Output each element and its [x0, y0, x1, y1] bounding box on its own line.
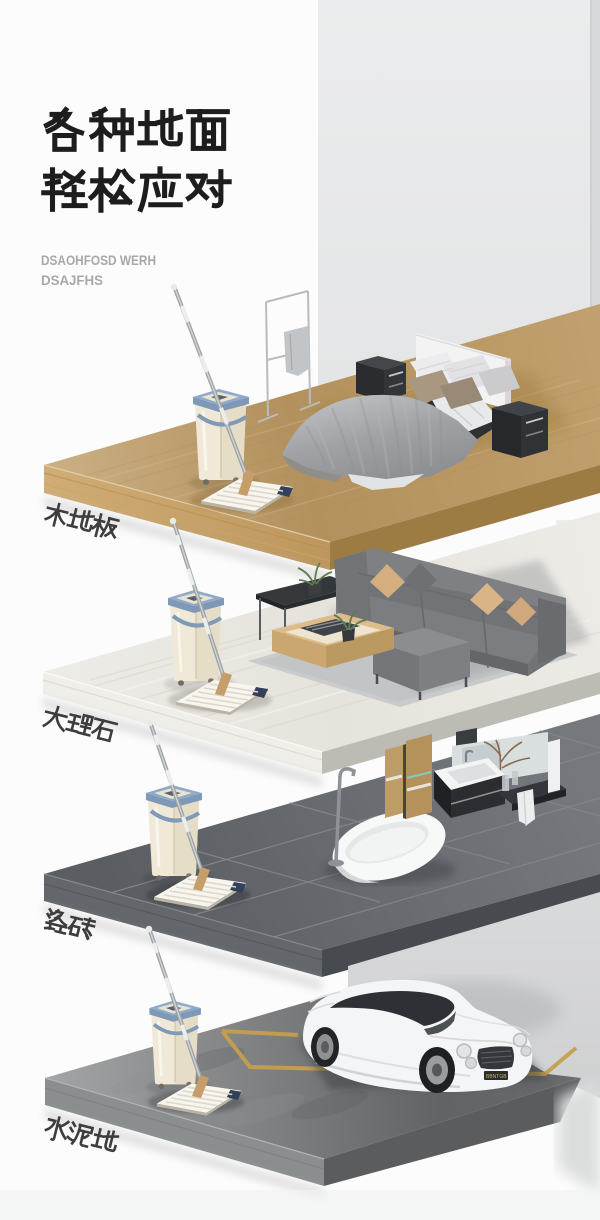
svg-text:BBNTGB: BBNTGB: [486, 1074, 507, 1080]
svg-text:DSAJFHS: DSAJFHS: [41, 272, 103, 288]
svg-text:DSAOHFOSD WERH: DSAOHFOSD WERH: [41, 252, 156, 268]
